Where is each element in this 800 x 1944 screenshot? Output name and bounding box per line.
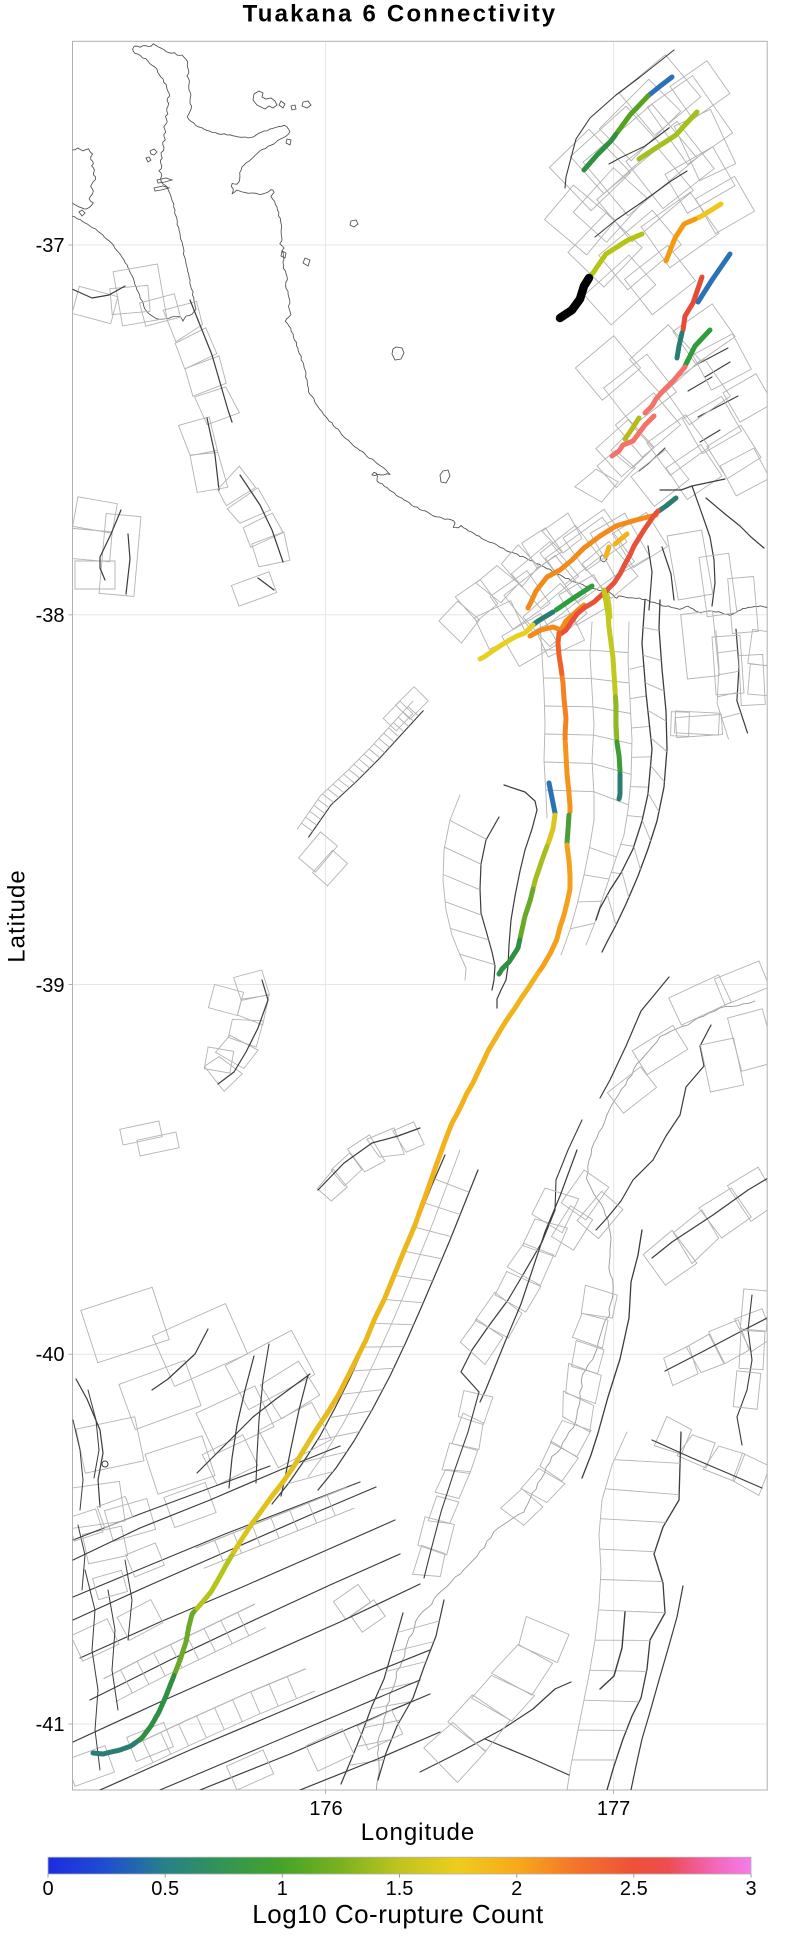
svg-text:-41: -41 xyxy=(36,1714,65,1736)
svg-text:177: 177 xyxy=(597,1798,630,1820)
svg-text:2: 2 xyxy=(511,1878,522,1900)
svg-text:Log10 Co-rupture Count: Log10 Co-rupture Count xyxy=(252,1899,544,1929)
svg-text:-37: -37 xyxy=(36,235,65,257)
svg-text:2.5: 2.5 xyxy=(620,1878,648,1900)
svg-text:Longitude: Longitude xyxy=(361,1819,475,1846)
svg-text:-39: -39 xyxy=(36,975,65,997)
svg-text:1.5: 1.5 xyxy=(386,1878,414,1900)
svg-text:0: 0 xyxy=(42,1878,53,1900)
svg-text:0.5: 0.5 xyxy=(151,1878,179,1900)
svg-text:3: 3 xyxy=(745,1878,756,1900)
svg-text:176: 176 xyxy=(309,1798,342,1820)
svg-text:1: 1 xyxy=(277,1878,288,1900)
svg-text:-40: -40 xyxy=(36,1344,65,1366)
svg-text:Latitude: Latitude xyxy=(4,869,31,962)
svg-text:-38: -38 xyxy=(36,605,65,627)
svg-text:Tuakana 6 Connectivity: Tuakana 6 Connectivity xyxy=(243,1,558,28)
